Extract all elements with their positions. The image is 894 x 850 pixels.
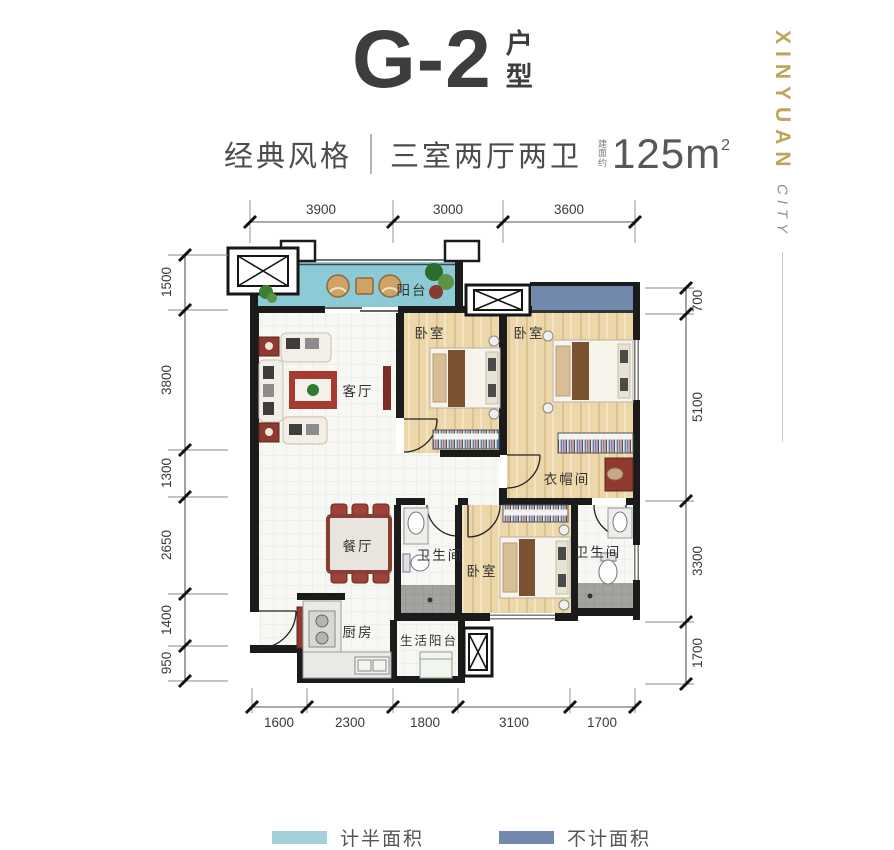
pillow bbox=[433, 354, 446, 402]
nightstand bbox=[489, 409, 499, 419]
dimensions-top: 3900 3000 3600 bbox=[244, 200, 641, 243]
toilet-icon bbox=[599, 560, 617, 584]
wardrobe bbox=[503, 505, 568, 522]
rattan-chair-icon bbox=[327, 275, 349, 297]
dim-bottom-1: 2300 bbox=[335, 715, 365, 730]
hall-floor bbox=[396, 453, 499, 505]
sink-icon bbox=[408, 512, 424, 534]
tv-cabinet bbox=[383, 366, 391, 410]
dim-left-5: 950 bbox=[159, 652, 174, 675]
nightstand bbox=[559, 525, 569, 535]
bedroom3-furniture bbox=[500, 505, 570, 610]
bay-window-zone bbox=[532, 286, 633, 310]
pillow bbox=[503, 543, 517, 592]
burner bbox=[316, 632, 328, 644]
wardrobe bbox=[433, 430, 499, 449]
wardrobe bbox=[558, 433, 633, 453]
dim-bottom-2: 1800 bbox=[410, 715, 440, 730]
bath2-window-gap bbox=[633, 545, 640, 580]
pillow bbox=[305, 338, 319, 349]
pillow bbox=[556, 346, 570, 396]
nightstand bbox=[543, 331, 553, 341]
nightstand bbox=[489, 336, 499, 346]
pillow bbox=[286, 338, 300, 349]
decor bbox=[265, 428, 273, 436]
bed-runner bbox=[558, 574, 566, 587]
shower-drain bbox=[588, 594, 593, 599]
dim-left-0: 1500 bbox=[159, 267, 174, 297]
label-bedroom1: 卧室 bbox=[415, 325, 446, 341]
decor bbox=[265, 342, 273, 350]
dimensions-bottom: 1600 2300 1800 3100 1700 bbox=[246, 688, 641, 730]
dim-right-0: 700 bbox=[690, 290, 705, 313]
dimensions-left: 1500 3800 1300 2650 1400 950 bbox=[159, 249, 228, 687]
nightstand bbox=[543, 403, 553, 413]
label-balcony: 阳台 bbox=[397, 283, 428, 298]
column-cap-right bbox=[445, 241, 479, 261]
floorplan-page: G-2 户型 经典风格 三室两厅两卫 建面约 125m2 XINYUAN CIT… bbox=[0, 0, 894, 850]
label-kitchen: 厨房 bbox=[343, 625, 374, 640]
pillow bbox=[263, 366, 274, 379]
legend-label-half: 计半面积 bbox=[340, 824, 424, 850]
ac-platform-top-middle bbox=[466, 285, 530, 315]
dim-bottom-3: 3100 bbox=[499, 715, 529, 730]
blanket bbox=[448, 350, 465, 407]
service-balcony-furniture bbox=[420, 652, 452, 678]
bed-runner bbox=[620, 378, 628, 391]
floorplan-drawing: 阳台 客厅 卧室 卧室 卧室 衣帽间 卫生间 卫生间 餐厅 厨房 生活阳台 39… bbox=[0, 0, 894, 850]
bedroom2-window-gap bbox=[633, 340, 640, 400]
legend-swatch-none-rect bbox=[499, 831, 554, 844]
pillow bbox=[289, 424, 302, 435]
label-bath1: 卫生间 bbox=[417, 548, 464, 563]
label-bedroom3: 卧室 bbox=[467, 563, 498, 579]
bedroom3-window-gap bbox=[490, 613, 555, 621]
ac-platform-bottom bbox=[464, 628, 492, 676]
label-cloakroom: 衣帽间 bbox=[544, 472, 591, 487]
dim-right-3: 1700 bbox=[690, 638, 705, 668]
dresser-stool bbox=[607, 468, 623, 480]
dim-right-2: 3300 bbox=[690, 546, 705, 576]
label-service-balcony: 生活阳台 bbox=[400, 633, 458, 648]
dimensions-right: 700 5100 3300 1700 bbox=[645, 282, 705, 690]
bed-runner bbox=[488, 358, 496, 371]
label-bedroom2: 卧室 bbox=[514, 325, 545, 341]
plant-pot bbox=[429, 285, 443, 299]
label-dining: 餐厅 bbox=[343, 539, 374, 554]
pillow bbox=[263, 384, 274, 397]
legend: 计半面积 不计面积 bbox=[272, 824, 651, 850]
bed-runner bbox=[620, 350, 628, 363]
side-table-icon bbox=[356, 278, 373, 294]
bedroom1-furniture bbox=[430, 336, 500, 449]
sink-icon bbox=[613, 512, 627, 532]
dim-bottom-0: 1600 bbox=[264, 715, 294, 730]
burner bbox=[316, 615, 328, 627]
blanket bbox=[572, 342, 589, 400]
dim-bottom-4: 1700 bbox=[587, 715, 617, 730]
pillow bbox=[263, 402, 274, 415]
label-bath2: 卫生间 bbox=[575, 545, 622, 560]
bed-runner bbox=[558, 547, 566, 560]
dim-left-4: 1400 bbox=[159, 605, 174, 635]
plant-icon bbox=[307, 384, 319, 396]
legend-label-none: 不计面积 bbox=[567, 824, 651, 850]
blanket bbox=[519, 539, 535, 596]
dim-left-3: 2650 bbox=[159, 530, 174, 560]
plant-icon bbox=[267, 293, 277, 303]
shower-drain bbox=[428, 598, 433, 603]
toilet-tank bbox=[403, 554, 410, 572]
bath2-shower bbox=[578, 583, 633, 608]
dim-top-0: 3900 bbox=[306, 202, 336, 217]
dim-top-1: 3000 bbox=[433, 202, 463, 217]
pillow bbox=[306, 424, 319, 435]
dim-top-2: 3600 bbox=[554, 202, 584, 217]
legend-swatch-half bbox=[272, 831, 327, 844]
legend-swatch-half-rect bbox=[272, 831, 327, 844]
legend-swatch-none bbox=[499, 831, 554, 844]
bed-runner bbox=[488, 384, 496, 397]
label-living: 客厅 bbox=[343, 383, 374, 399]
nightstand bbox=[559, 600, 569, 610]
washing-machine bbox=[420, 652, 452, 678]
dim-left-2: 1300 bbox=[159, 458, 174, 488]
dim-right-1: 5100 bbox=[690, 392, 705, 422]
dim-left-1: 3800 bbox=[159, 365, 174, 395]
